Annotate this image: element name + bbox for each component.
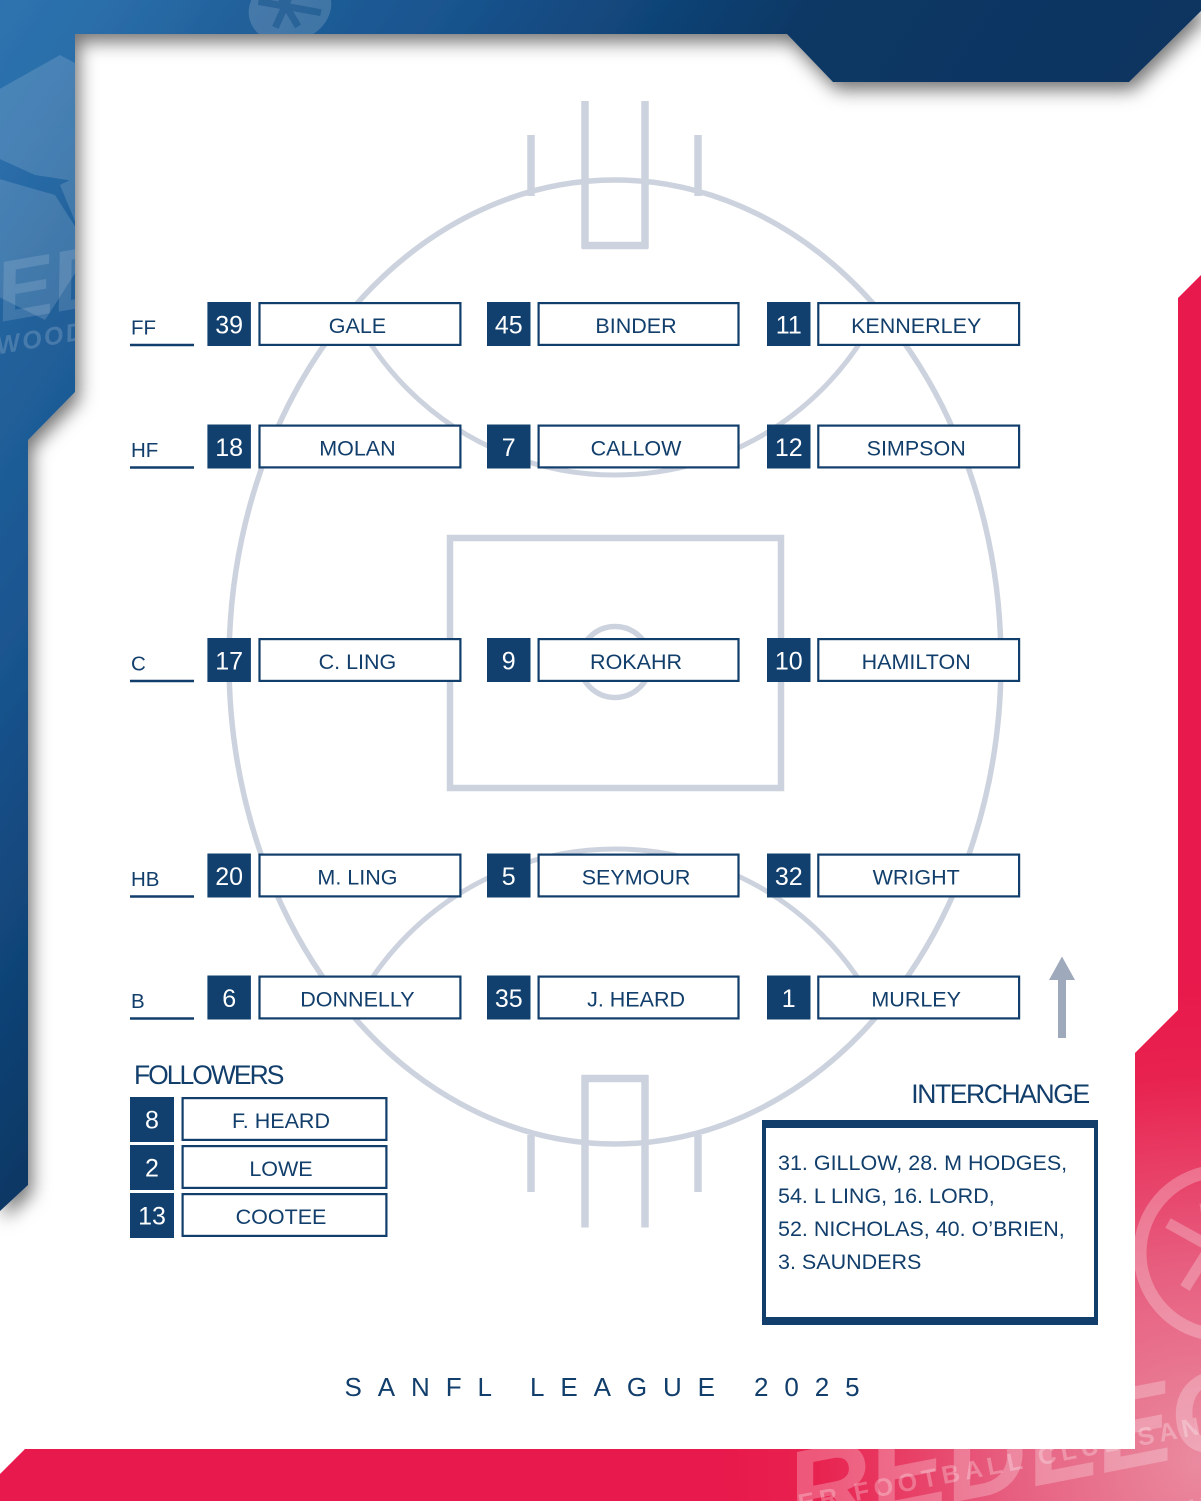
svg-text:39: 39 [215, 312, 243, 340]
svg-text:2: 2 [145, 1155, 159, 1183]
svg-text:CALLOW: CALLOW [591, 437, 683, 461]
svg-text:6: 6 [222, 985, 236, 1013]
svg-text:5: 5 [502, 863, 516, 891]
svg-text:32: 32 [775, 863, 803, 891]
svg-text:11: 11 [776, 312, 802, 340]
svg-text:9: 9 [502, 648, 516, 676]
svg-text:12: 12 [775, 434, 803, 462]
svg-text:17: 17 [215, 648, 243, 676]
svg-text:BINDER: BINDER [595, 314, 676, 338]
svg-text:INTERCHANGE: INTERCHANGE [911, 1079, 1089, 1109]
svg-text:13: 13 [138, 1203, 166, 1231]
svg-text:KENNERLEY: KENNERLEY [851, 314, 981, 338]
svg-text:35: 35 [495, 985, 523, 1013]
svg-text:FOLLOWERS: FOLLOWERS [134, 1060, 284, 1090]
svg-text:45: 45 [495, 312, 523, 340]
svg-text:7: 7 [502, 434, 516, 462]
svg-text:8: 8 [145, 1107, 159, 1135]
svg-text:ROKAHR: ROKAHR [590, 650, 682, 674]
svg-text:J. HEARD: J. HEARD [587, 988, 685, 1012]
svg-text:F. HEARD: F. HEARD [232, 1109, 330, 1133]
svg-text:3. SAUNDERS: 3. SAUNDERS [778, 1250, 921, 1274]
svg-text:B: B [131, 990, 145, 1013]
svg-text:M. LING: M. LING [317, 866, 397, 890]
svg-text:SANFL LEAGUE 2025: SANFL LEAGUE 2025 [345, 1372, 876, 1402]
svg-text:HAMILTON: HAMILTON [862, 650, 971, 674]
svg-text:LOWE: LOWE [249, 1157, 312, 1181]
svg-text:COOTEE: COOTEE [236, 1205, 327, 1229]
svg-text:DONNELLY: DONNELLY [300, 988, 414, 1012]
svg-text:SEYMOUR: SEYMOUR [582, 866, 691, 890]
svg-text:18: 18 [215, 434, 243, 462]
svg-text:20: 20 [215, 863, 243, 891]
svg-text:FF: FF [131, 317, 156, 340]
svg-text:C. LING: C. LING [319, 650, 397, 674]
svg-text:C: C [131, 653, 146, 676]
svg-text:10: 10 [775, 648, 803, 676]
svg-text:52. NICHOLAS, 40. O’BRIEN,: 52. NICHOLAS, 40. O’BRIEN, [778, 1217, 1065, 1241]
svg-text:HF: HF [131, 439, 158, 462]
svg-text:31. GILLOW, 28. M HODGES,: 31. GILLOW, 28. M HODGES, [778, 1151, 1067, 1175]
svg-text:54. L LING, 16. LORD,: 54. L LING, 16. LORD, [778, 1184, 995, 1208]
svg-text:HB: HB [131, 868, 159, 891]
svg-text:SIMPSON: SIMPSON [867, 437, 966, 461]
svg-text:MURLEY: MURLEY [871, 988, 961, 1012]
svg-text:MOLAN: MOLAN [319, 437, 395, 461]
svg-text:GALE: GALE [329, 314, 386, 338]
svg-text:WRIGHT: WRIGHT [873, 866, 960, 890]
svg-text:1: 1 [782, 985, 796, 1013]
